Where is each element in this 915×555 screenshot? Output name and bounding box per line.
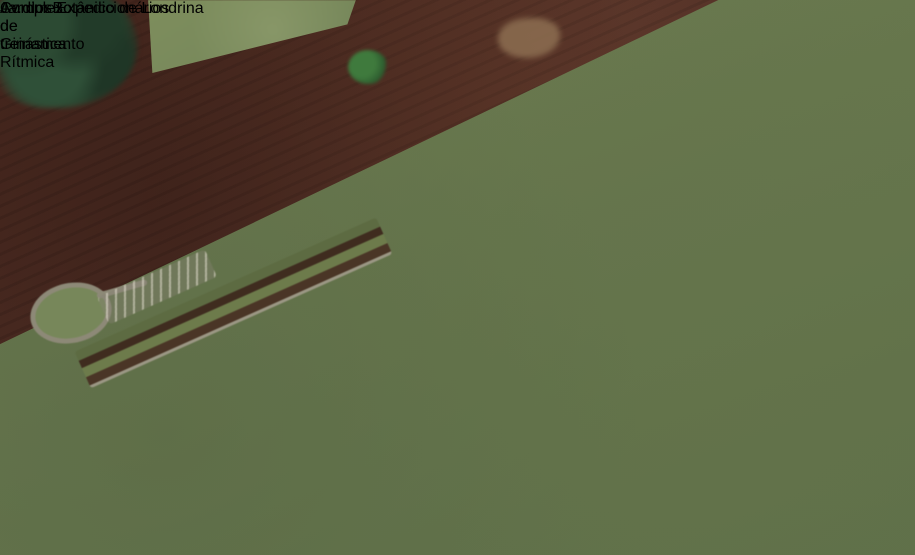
map-canvas: Av. dos Expedicionários Jardim Botânico …	[0, 0, 915, 555]
tree-pair	[348, 50, 388, 84]
project-label-line2: de Ginástica Rítmica	[0, 18, 67, 72]
